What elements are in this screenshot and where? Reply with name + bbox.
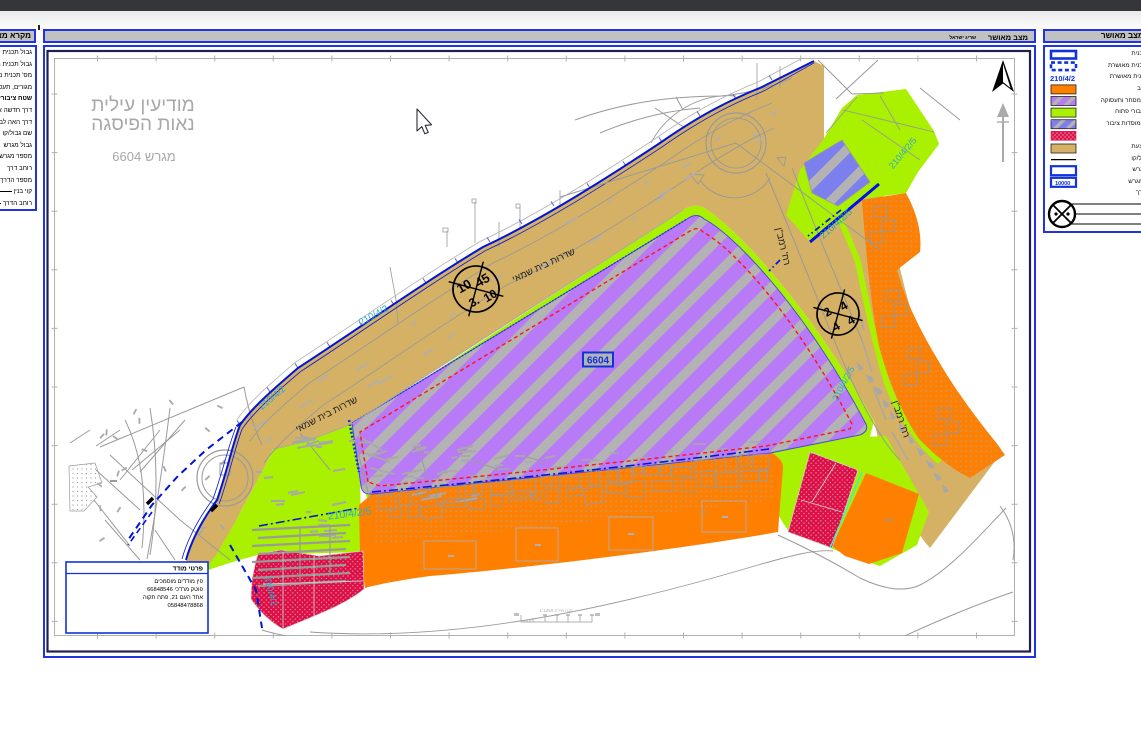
svg-text:מודיעין עילית: מודיעין עילית [91, 95, 194, 116]
svg-text:אחד העם 21, פתח תקוה: אחד העם 21, פתח תקוה [143, 595, 203, 601]
svg-text:נאות הפיסגה: נאות הפיסגה [91, 114, 194, 135]
svg-text:210/4/2: 210/4/2 [1050, 74, 1075, 83]
svg-text:10000: 10000 [1055, 181, 1070, 187]
svg-text:מגרש 6604: מגרש 6604 [112, 149, 175, 164]
svg-text:1:1250 קנה מידה: 1:1250 קנה מידה [540, 608, 573, 613]
svg-text:05848478868: 05848478868 [168, 603, 203, 609]
svg-text:פוטק מרדכי 66848546: פוטק מרדכי 66848546 [147, 587, 203, 593]
svg-text:פין מודדים מוסמכים: פין מודדים מוסמכים [154, 579, 203, 585]
svg-text:פרטי מודד: פרטי מודד [173, 566, 203, 573]
svg-text:6604: 6604 [587, 356, 610, 367]
